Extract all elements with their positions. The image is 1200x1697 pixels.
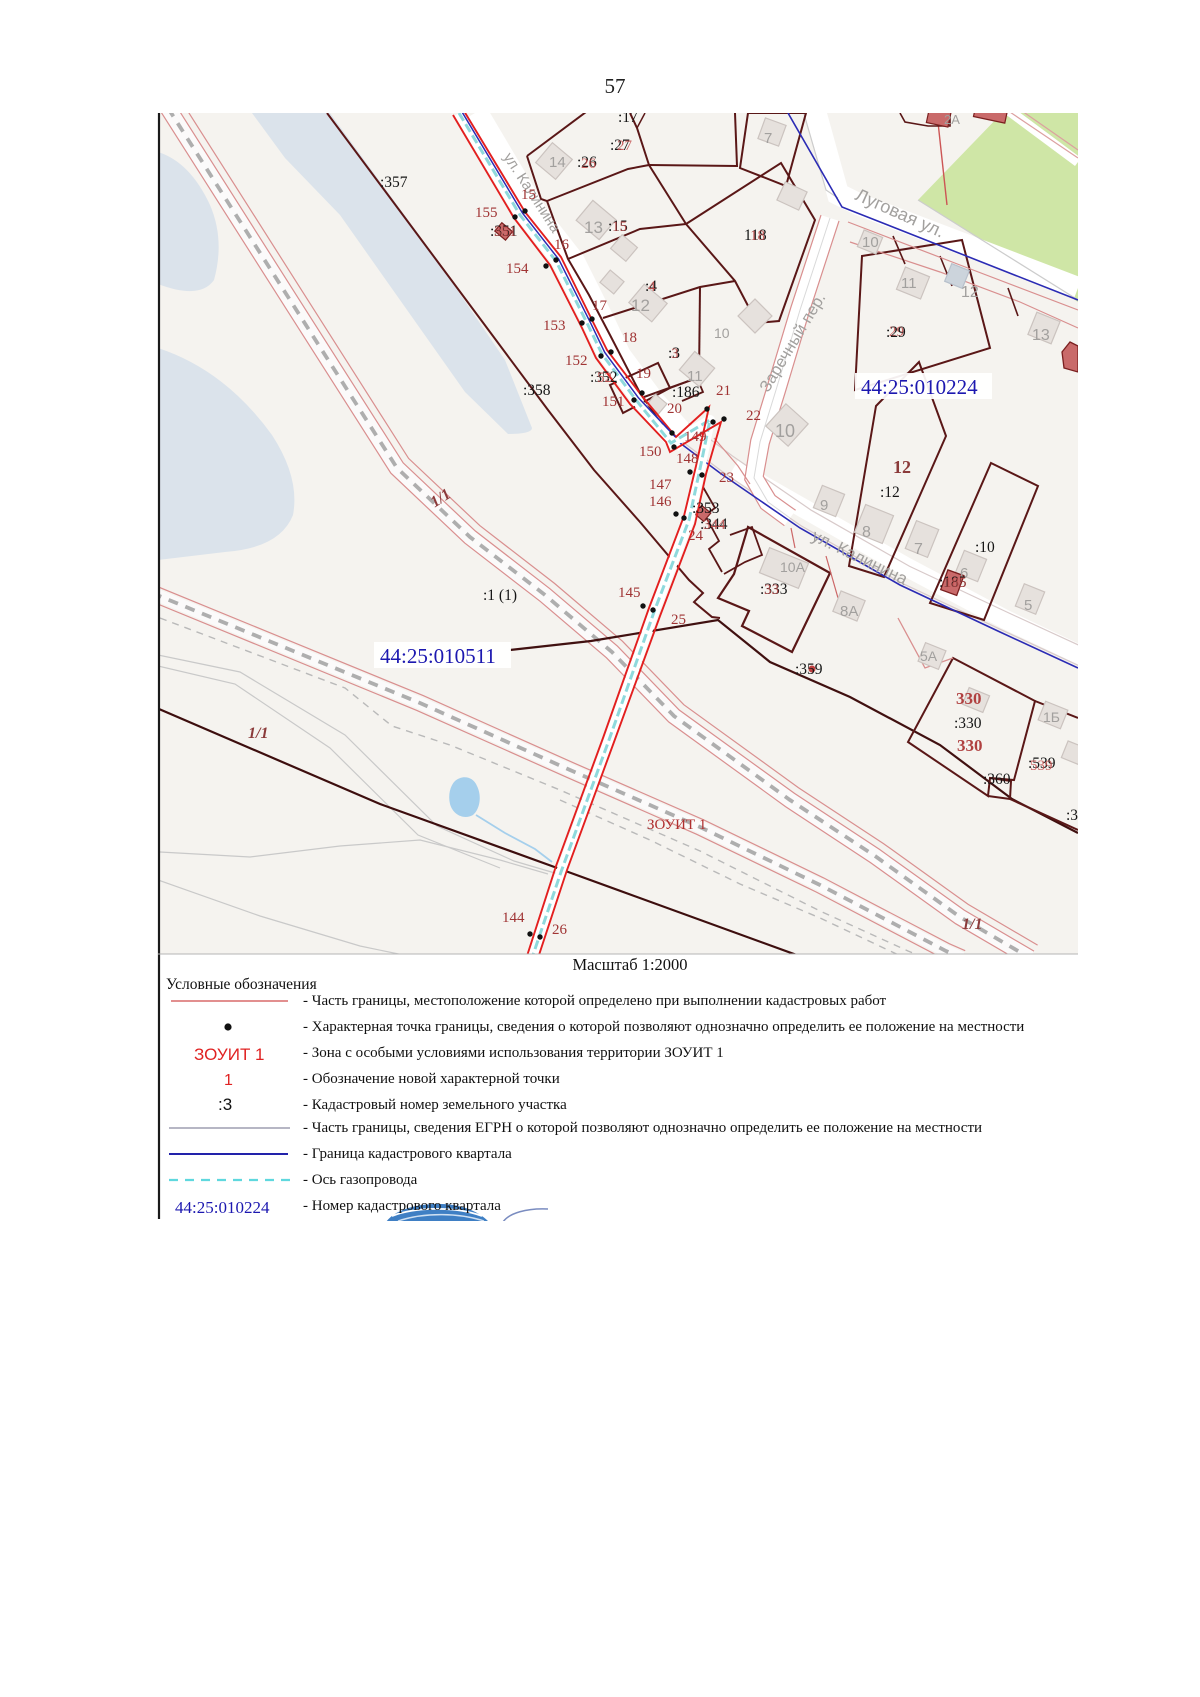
svg-text:25: 25 <box>671 612 686 628</box>
svg-text:27: 27 <box>617 138 633 154</box>
svg-text:147: 147 <box>649 477 672 493</box>
svg-text:12: 12 <box>631 296 650 315</box>
svg-text:18: 18 <box>750 228 765 244</box>
svg-text:33: 33 <box>764 582 779 598</box>
svg-text:12: 12 <box>893 457 911 477</box>
svg-text:44:25:010224: 44:25:010224 <box>861 375 978 399</box>
svg-text::358: :358 <box>523 382 551 399</box>
svg-text:146: 146 <box>649 494 672 510</box>
svg-text:8А: 8А <box>840 603 858 620</box>
svg-text::12: :12 <box>880 484 900 501</box>
svg-text:1: 1 <box>224 1072 233 1089</box>
svg-text:- Номер кадастрового квартала: - Номер кадастрового квартала <box>303 1198 501 1214</box>
svg-text::359: :359 <box>795 661 823 678</box>
svg-text:150: 150 <box>639 444 662 460</box>
svg-text:10: 10 <box>862 234 879 251</box>
svg-text:7: 7 <box>764 130 772 147</box>
svg-text:26: 26 <box>581 156 597 172</box>
svg-text:7: 7 <box>914 541 923 558</box>
svg-text::10: :10 <box>975 539 995 556</box>
svg-text:18: 18 <box>622 330 637 346</box>
svg-text:26: 26 <box>552 922 568 938</box>
svg-text:153: 153 <box>543 318 566 334</box>
svg-text:- Характерная точка границы, с: - Характерная точка границы, сведения о … <box>303 1019 1024 1035</box>
svg-text::186: :186 <box>672 384 700 401</box>
svg-text:ЗОУИТ 1: ЗОУИТ 1 <box>194 1045 265 1064</box>
svg-text:149: 149 <box>684 429 707 445</box>
svg-text:1/1: 1/1 <box>962 916 982 933</box>
svg-text:148: 148 <box>676 451 699 467</box>
svg-text::360: :360 <box>983 771 1011 788</box>
svg-text:13: 13 <box>1032 327 1050 344</box>
svg-text:Условные обозначения: Условные обозначения <box>166 976 317 993</box>
svg-text:17: 17 <box>592 298 608 314</box>
svg-text:330: 330 <box>957 736 983 755</box>
svg-text:16: 16 <box>554 237 570 253</box>
svg-text::3: :3 <box>218 1095 232 1114</box>
svg-text::3: :3 <box>1066 807 1078 824</box>
svg-text:24: 24 <box>688 528 704 544</box>
svg-text:145: 145 <box>618 585 641 601</box>
svg-text:144: 144 <box>502 910 525 926</box>
svg-text:1/1: 1/1 <box>248 725 268 742</box>
svg-text:ЗОУИТ 1: ЗОУИТ 1 <box>647 817 706 833</box>
svg-text:351: 351 <box>494 224 517 240</box>
svg-text:21: 21 <box>716 383 731 399</box>
svg-text:- Ось газопровода: - Ось газопровода <box>303 1172 418 1188</box>
svg-text:185: 185 <box>944 575 967 591</box>
svg-text:3: 3 <box>671 346 679 362</box>
svg-text:151: 151 <box>602 394 625 410</box>
svg-text:11: 11 <box>901 275 917 292</box>
svg-text:10: 10 <box>775 421 795 441</box>
svg-text::1 (1): :1 (1) <box>483 587 517 604</box>
svg-text:- Часть границы, местоположени: - Часть границы, местоположение которой … <box>303 993 887 1009</box>
svg-text:Масштаб 1:2000: Масштаб 1:2000 <box>572 955 687 974</box>
svg-text:- Зона с особыми условиями исп: - Зона с особыми условиями использования… <box>303 1045 724 1061</box>
svg-text:20: 20 <box>667 401 682 417</box>
svg-text:5: 5 <box>1024 597 1032 614</box>
svg-text:344: 344 <box>703 517 726 533</box>
svg-text::29: :29 <box>886 324 906 341</box>
svg-text::330: :330 <box>954 715 982 732</box>
svg-text:5А: 5А <box>920 648 938 664</box>
svg-text:22: 22 <box>746 408 761 424</box>
svg-text:14: 14 <box>549 154 566 171</box>
svg-text:154: 154 <box>506 261 529 277</box>
svg-text:539: 539 <box>1030 758 1053 774</box>
svg-text:23: 23 <box>719 470 734 486</box>
svg-text::353: :353 <box>692 500 720 517</box>
svg-text:11: 11 <box>687 368 703 385</box>
svg-text:10: 10 <box>714 325 730 341</box>
svg-text:- Кадастровый номер земельного: - Кадастровый номер земельного участка <box>303 1097 567 1113</box>
svg-text:15: 15 <box>612 219 627 235</box>
svg-text:57: 57 <box>605 74 626 98</box>
svg-text:- Граница кадастрового квартал: - Граница кадастрового квартала <box>303 1146 512 1162</box>
svg-text:2А: 2А <box>944 112 960 127</box>
svg-text:12: 12 <box>961 284 979 301</box>
svg-text:15: 15 <box>521 187 536 203</box>
svg-text:155: 155 <box>475 205 498 221</box>
svg-text:- Часть границы, сведения ЕГРН: - Часть границы, сведения ЕГРН о которой… <box>303 1120 982 1136</box>
svg-text:4: 4 <box>648 279 656 295</box>
svg-text:330: 330 <box>956 689 982 708</box>
svg-text:9: 9 <box>820 497 828 514</box>
svg-text:- Обозначение новой характерно: - Обозначение новой характерной точки <box>303 1071 560 1087</box>
svg-text:19: 19 <box>636 366 651 382</box>
svg-text:152: 152 <box>565 353 588 369</box>
svg-text:52: 52 <box>597 370 612 386</box>
svg-text:8: 8 <box>862 524 871 541</box>
svg-text:13: 13 <box>584 218 603 237</box>
svg-text::357: :357 <box>380 174 408 191</box>
svg-text:44:25:010511: 44:25:010511 <box>380 644 496 668</box>
svg-text:10А: 10А <box>780 559 806 575</box>
svg-text:44:25:010224: 44:25:010224 <box>175 1198 270 1217</box>
svg-text:1Б: 1Б <box>1043 709 1060 725</box>
svg-text::17: :17 <box>618 109 638 126</box>
